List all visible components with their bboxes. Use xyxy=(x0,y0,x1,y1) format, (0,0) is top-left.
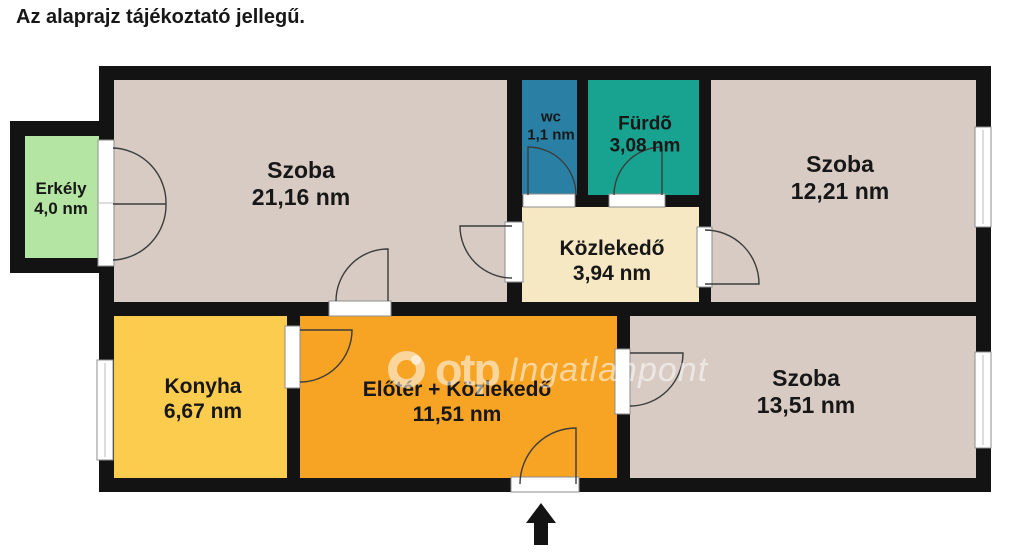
room-name: Fürdõ xyxy=(610,114,681,136)
room-label-furdo: Fürdõ 3,08 nm xyxy=(610,114,681,159)
room-label-szoba-12: Szoba 12,21 nm xyxy=(791,151,889,205)
room-label-erkely: Erkély 4,0 nm xyxy=(34,179,88,219)
plan-disclaimer-title: Az alaprajz tájékoztató jellegű. xyxy=(16,6,305,29)
wall-outer-top xyxy=(99,66,991,80)
doorframe-kozlekedo-szoba12 xyxy=(697,227,712,287)
entrance-arrow-icon xyxy=(526,503,556,545)
room-area: 21,16 nm xyxy=(252,184,350,211)
room-name: Előtér + Közlekedő xyxy=(363,378,551,403)
doorframe-furdo xyxy=(609,194,665,207)
room-area: 13,51 nm xyxy=(757,392,855,419)
room-area: 3,08 nm xyxy=(610,136,681,158)
wall-balcony-left xyxy=(10,121,25,273)
room-name: Szoba xyxy=(791,151,889,178)
room-name: Szoba xyxy=(252,157,350,184)
room-label-eloter: Előtér + Közlekedő 11,51 nm xyxy=(363,378,551,428)
room-label-konyha: Konyha 6,67 nm xyxy=(164,375,242,425)
floorplan-page: Az alaprajz tájékoztató jellegű. xyxy=(0,0,1024,557)
room-area: 11,51 nm xyxy=(363,403,551,428)
room-area: 4,0 nm xyxy=(34,199,88,219)
doorframe-entrance xyxy=(511,477,579,492)
room-area: 6,67 nm xyxy=(164,400,242,425)
doorframe-wc xyxy=(523,194,575,207)
room-label-wc: wc 1,1 nm xyxy=(527,108,575,143)
doorframe-kozlekedo-szoba21 xyxy=(505,222,523,282)
doorframe-eloter-szoba21 xyxy=(329,301,391,316)
room-name: wc xyxy=(527,108,575,126)
room-name: Konyha xyxy=(164,375,242,400)
room-name: Közlekedő xyxy=(559,237,664,262)
room-area: 12,21 nm xyxy=(791,178,889,205)
wall-wc-furdo xyxy=(577,66,588,207)
floorplan-drawing xyxy=(0,0,1024,557)
doorframe-eloter-szoba13 xyxy=(615,349,630,414)
room-name: Szoba xyxy=(757,365,855,392)
room-name: Erkély xyxy=(34,179,88,199)
wall-middle xyxy=(99,302,976,316)
room-area: 3,94 nm xyxy=(559,262,664,287)
doorframe-konyha-eloter xyxy=(285,326,300,388)
room-label-szoba-13: Szoba 13,51 nm xyxy=(757,365,855,419)
room-label-szoba-21: Szoba 21,16 nm xyxy=(252,157,350,211)
room-label-kozlekedo: Közlekedő 3,94 nm xyxy=(559,237,664,287)
room-area: 1,1 nm xyxy=(527,126,575,144)
wall-balcony-top xyxy=(10,121,114,136)
